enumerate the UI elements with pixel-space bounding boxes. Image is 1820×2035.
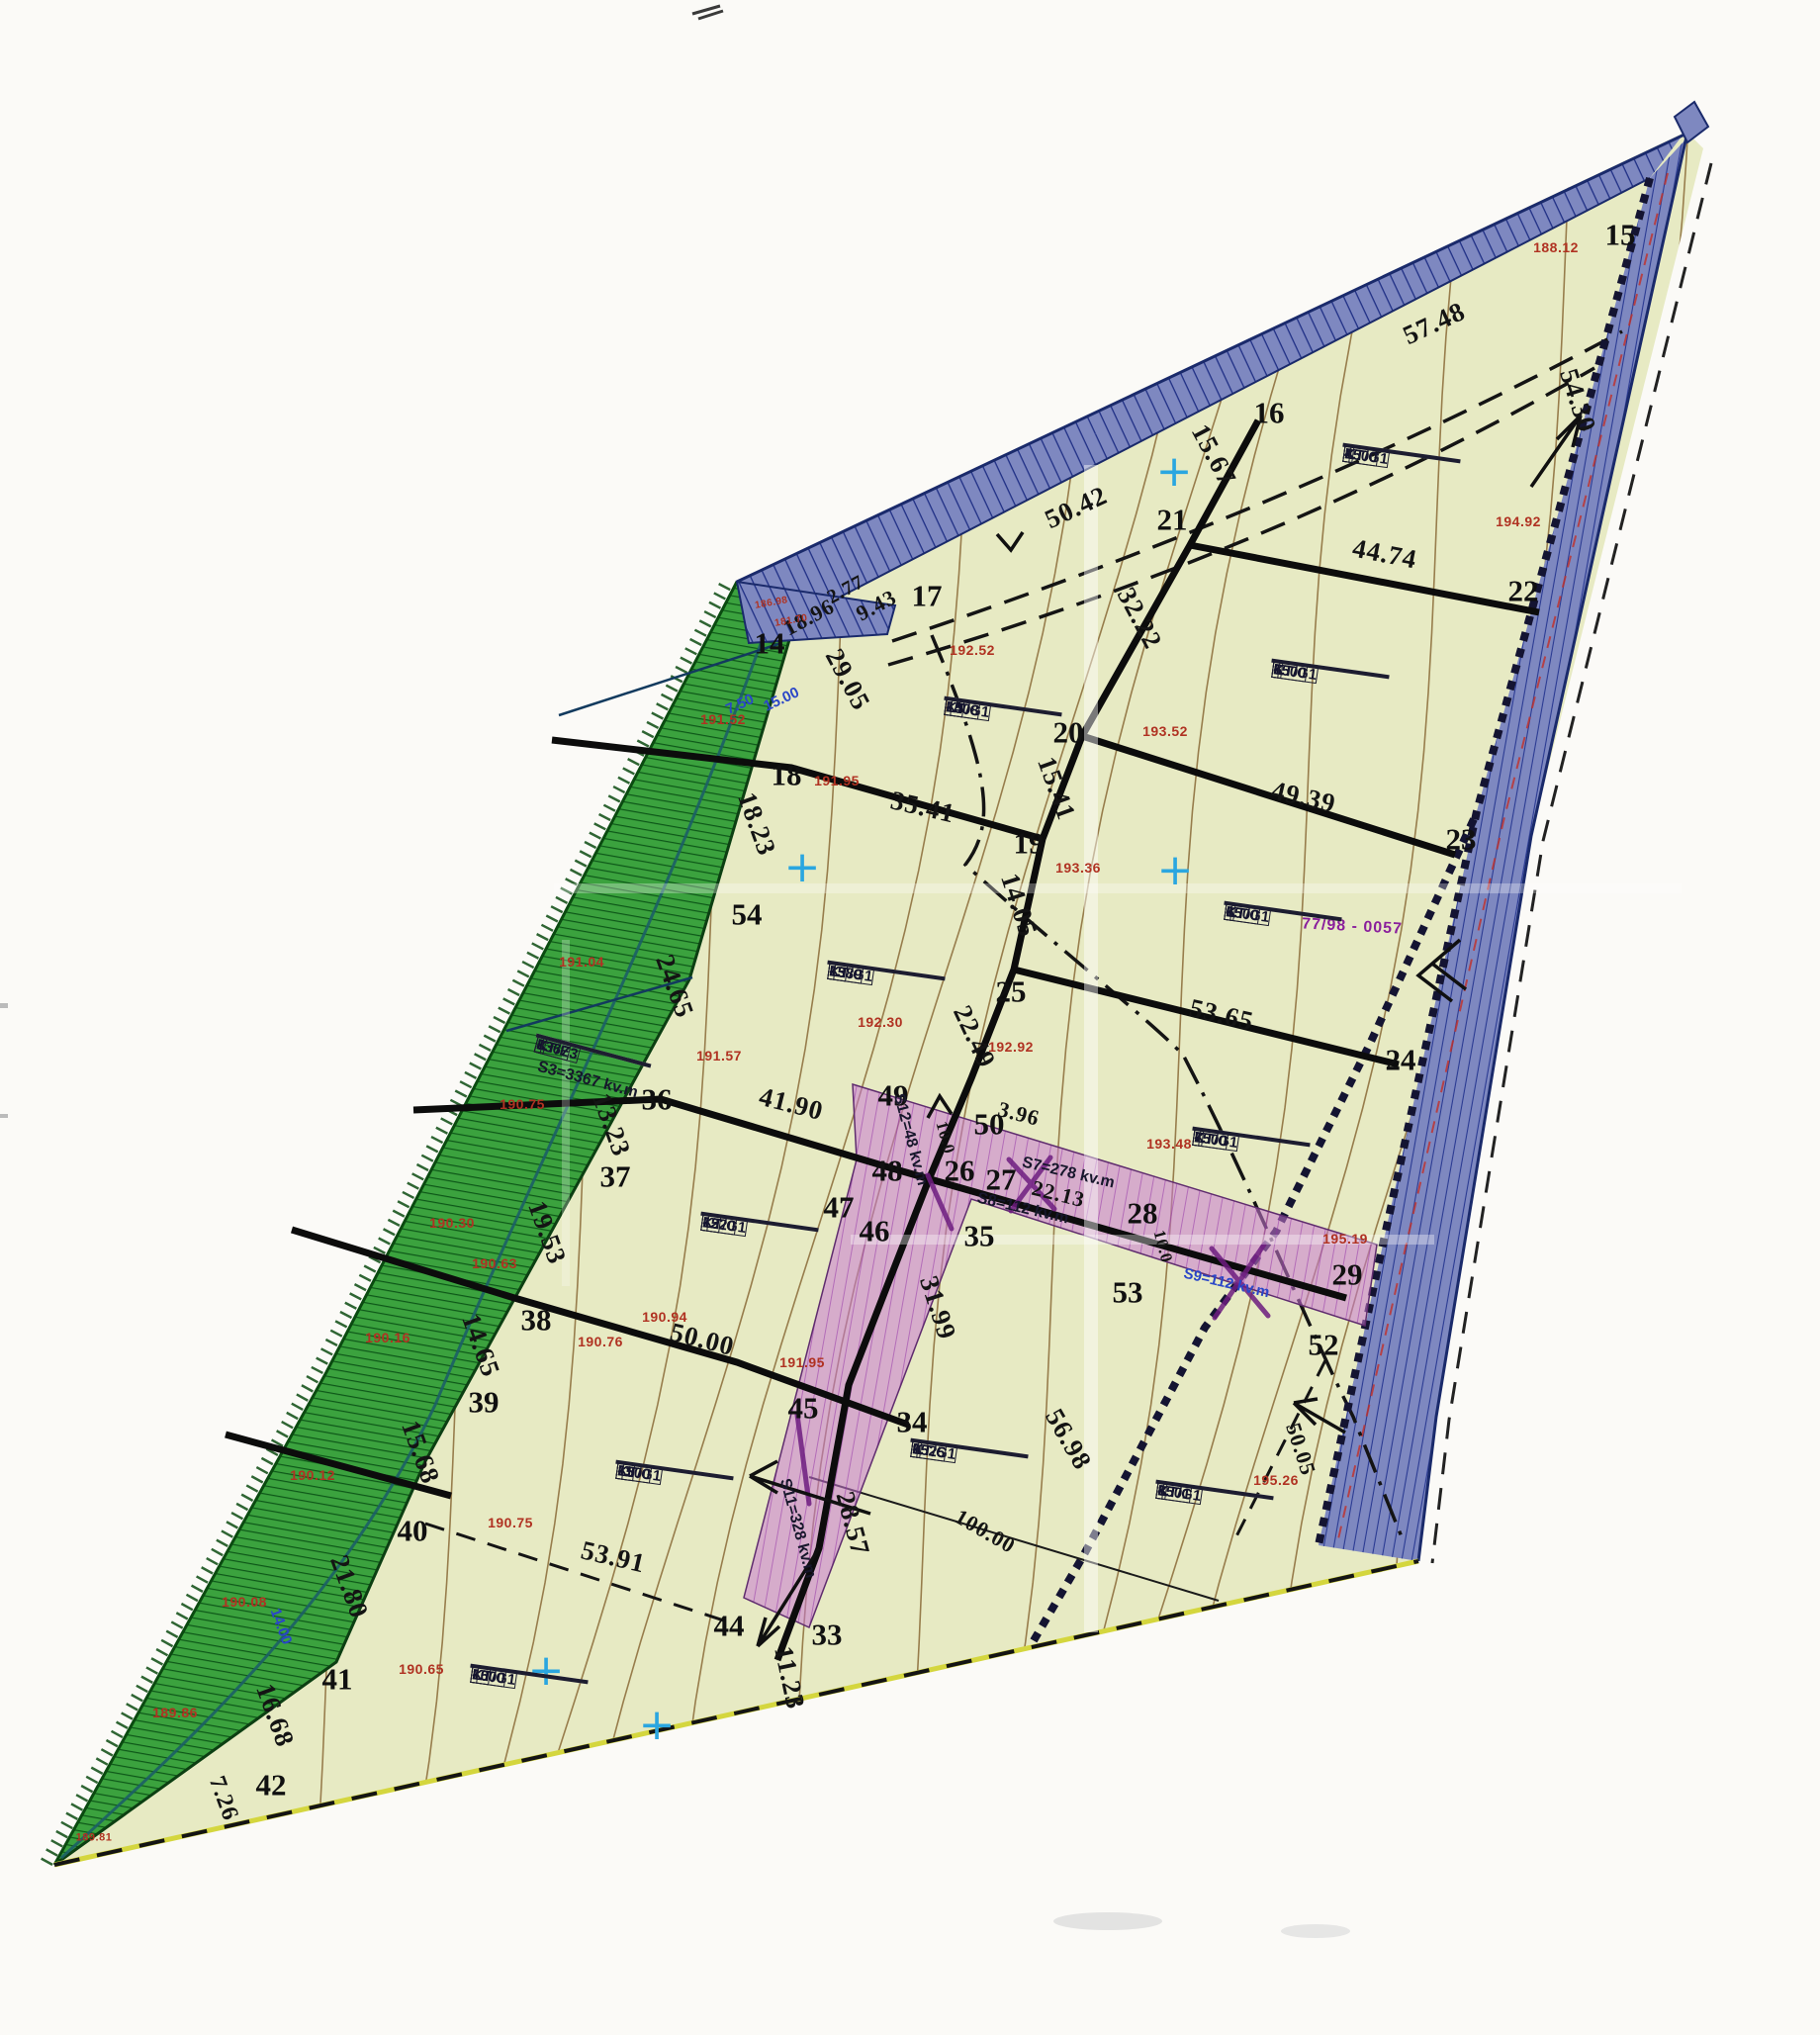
- cadastral-map-page: 1415161718192021222324252627282933343536…: [0, 0, 1820, 2035]
- map-svg: [0, 0, 1820, 2035]
